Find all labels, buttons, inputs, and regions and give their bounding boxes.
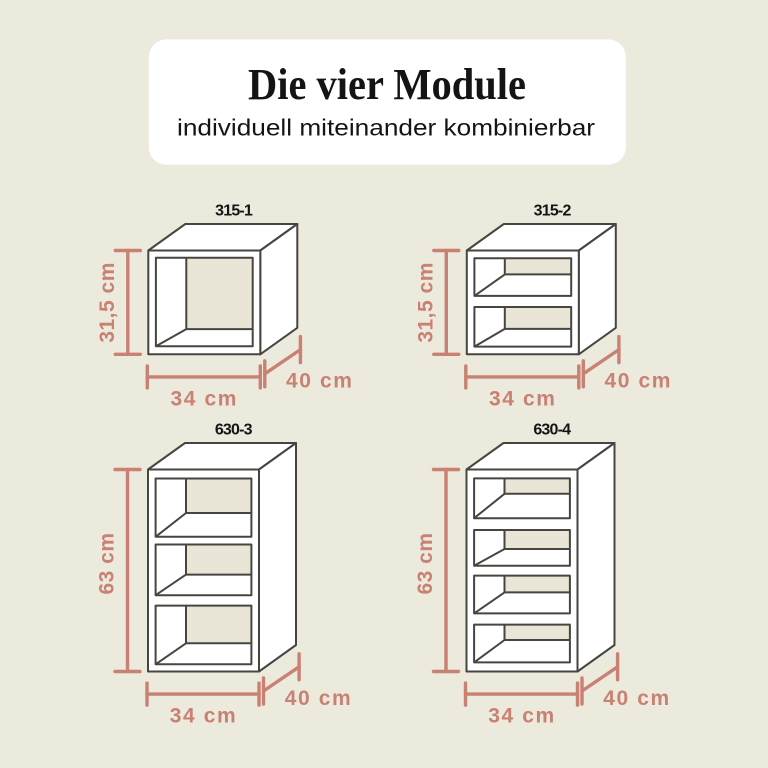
svg-text:31,5 cm: 31,5 cm <box>96 262 119 343</box>
svg-text:34 cm: 34 cm <box>171 387 239 410</box>
svg-text:individuell miteinander kombin: individuell miteinander kombinierbar <box>177 115 595 141</box>
svg-text:40 cm: 40 cm <box>285 687 353 710</box>
svg-text:34 cm: 34 cm <box>488 705 556 728</box>
svg-text:40 cm: 40 cm <box>286 370 354 393</box>
svg-text:40 cm: 40 cm <box>605 370 673 393</box>
svg-text:315-1: 315-1 <box>215 203 253 220</box>
svg-text:630-4: 630-4 <box>533 422 571 439</box>
svg-text:315-2: 315-2 <box>534 203 572 220</box>
svg-text:40 cm: 40 cm <box>603 687 671 710</box>
svg-text:630-3: 630-3 <box>215 422 253 439</box>
svg-text:31,5 cm: 31,5 cm <box>414 262 437 343</box>
svg-text:63 cm: 63 cm <box>414 532 437 594</box>
svg-text:Die vier Module: Die vier Module <box>248 60 526 109</box>
svg-text:34 cm: 34 cm <box>170 705 238 728</box>
svg-text:63 cm: 63 cm <box>96 532 119 594</box>
svg-text:34 cm: 34 cm <box>489 387 557 410</box>
